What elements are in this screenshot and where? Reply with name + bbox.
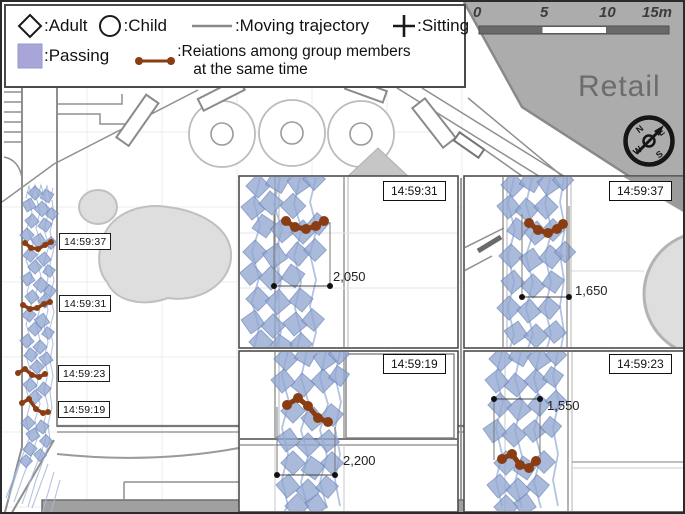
- inset-4-distance: 1,550: [547, 398, 580, 413]
- svg-text:N: N: [634, 123, 645, 135]
- trajectory-line-icon: [189, 16, 235, 36]
- passing-square-icon: [16, 43, 44, 69]
- legend-item-child: :Child: [97, 13, 166, 39]
- inset-panel-4: [464, 351, 685, 512]
- inset-panel-2: [462, 176, 685, 356]
- scale-label-10: 10: [599, 4, 616, 21]
- inset-2-distance: 1,650: [575, 283, 608, 298]
- compass-icon: N E S W: [620, 112, 678, 170]
- relations-label-line2: at the same time: [177, 61, 308, 78]
- passing-label: :Passing: [44, 46, 109, 66]
- sitting-plus-icon: [391, 13, 417, 39]
- legend-item-sitting: :Sitting: [391, 13, 469, 39]
- adult-diamond-icon: [16, 13, 44, 39]
- legend-item-trajectory: :Moving trajectory: [189, 16, 369, 36]
- map-time-label-4: 14:59:19: [58, 401, 110, 418]
- adult-label: :Adult: [44, 16, 87, 36]
- legend-item-passing: :Passing: [16, 43, 109, 69]
- inset-1-distance: 2,050: [333, 269, 366, 284]
- scale-bar: [479, 26, 669, 34]
- inset-2-timestamp: 14:59:37: [609, 181, 672, 201]
- round-tables: [189, 100, 394, 167]
- scale-label-5: 5: [540, 4, 548, 21]
- relations-label-line1: :Reiations among group members: [177, 43, 410, 60]
- stairs: [4, 92, 22, 178]
- scale-label-15m: 15m: [642, 4, 672, 21]
- inset-panel-3: [239, 351, 458, 512]
- legend-item-relations: :Reiations among group members at the sa…: [133, 43, 410, 80]
- figure-trajectory-map: :Adult :Child :Moving trajectory :Si: [0, 0, 685, 514]
- legend-item-adult: :Adult: [16, 13, 87, 39]
- map-time-label-2: 14:59:31: [59, 295, 111, 312]
- inset-3-distance: 2,200: [343, 453, 376, 468]
- child-circle-icon: [97, 13, 123, 39]
- legend-row-2: :Passing :Reiations among group members …: [16, 43, 454, 80]
- scale-label-0: 0: [473, 4, 481, 21]
- map-time-label-1: 14:59:37: [59, 233, 111, 250]
- legend-row-1: :Adult :Child :Moving trajectory :Si: [16, 13, 454, 39]
- inset-4-timestamp: 14:59:23: [609, 354, 672, 374]
- retail-label: Retail: [578, 70, 661, 104]
- relations-dumbbell-icon: [133, 52, 177, 70]
- legend: :Adult :Child :Moving trajectory :Si: [4, 4, 466, 88]
- inset-3-timestamp: 14:59:19: [383, 354, 446, 374]
- map-time-label-3: 14:59:23: [58, 365, 110, 382]
- sitting-label: :Sitting: [417, 16, 469, 36]
- child-label: :Child: [123, 16, 166, 36]
- inset-1-timestamp: 14:59:31: [383, 181, 446, 201]
- inset-panel-1: [239, 176, 458, 348]
- relations-label: :Reiations among group members at the sa…: [177, 43, 410, 80]
- trajectory-label: :Moving trajectory: [235, 16, 369, 36]
